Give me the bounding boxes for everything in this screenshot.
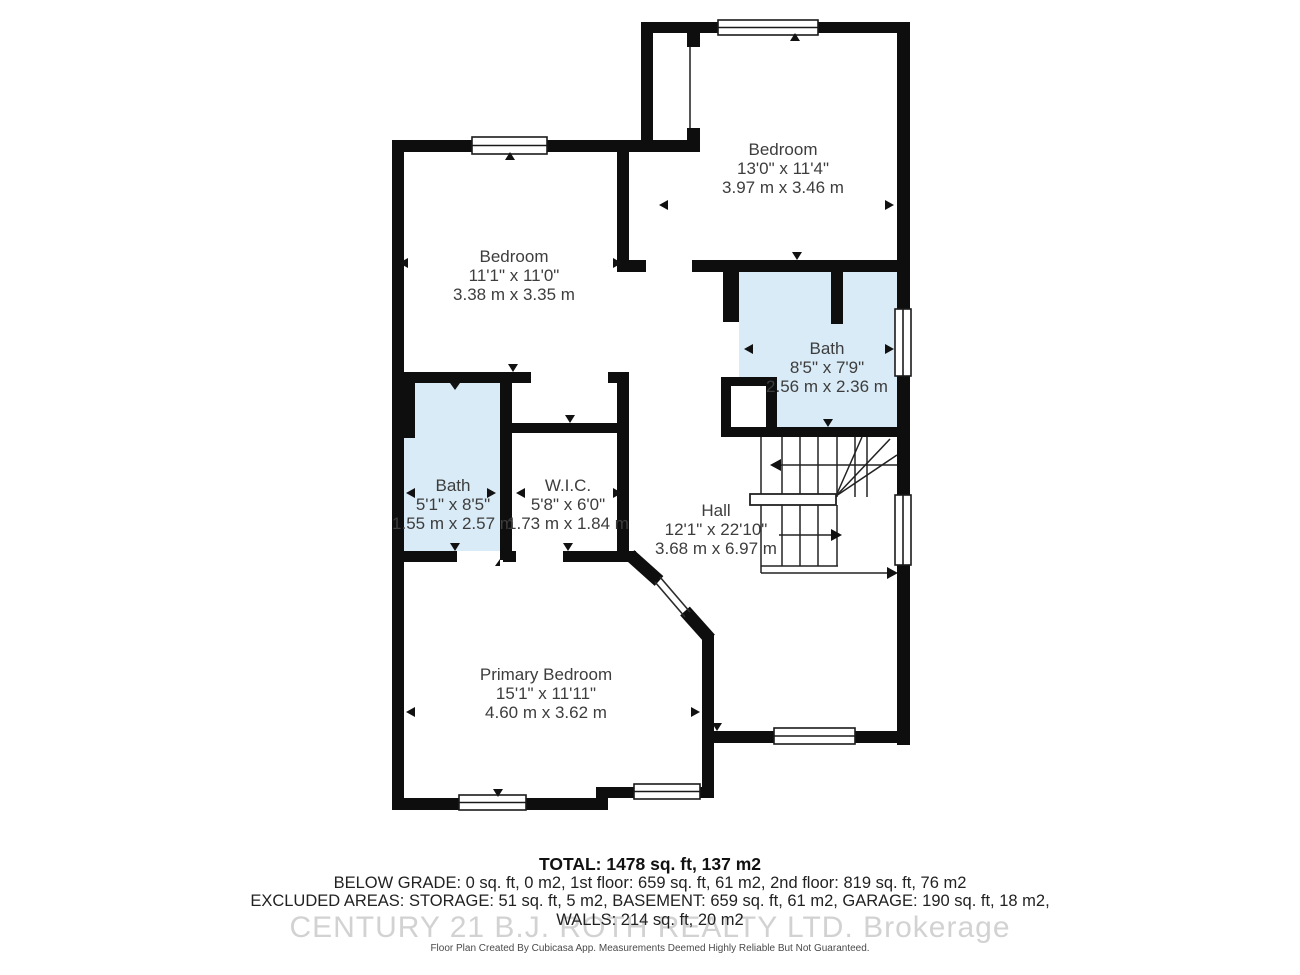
room-dim-metric: 1.73 m x 1.84 m: [507, 514, 629, 533]
area-summary: TOTAL: 1478 sq. ft, 137 m2 BELOW GRADE: …: [0, 855, 1300, 929]
room-label-bath-left: Bath 5'1" x 8'5" 1.55 m x 2.57 m: [392, 476, 514, 533]
stair-arrowheads: [770, 459, 898, 579]
room-label-bath-right: Bath 8'5" x 7'9" 2.56 m x 2.36 m: [766, 339, 888, 396]
total-area-text: TOTAL: 1478 sq. ft, 137 m2: [0, 855, 1300, 874]
room-dim-imperial: 13'0" x 11'4": [722, 159, 844, 178]
room-dim-metric: 4.60 m x 3.62 m: [480, 703, 612, 722]
room-dim-imperial: 11'1" x 11'0": [453, 266, 575, 285]
diagonal-walls: [630, 555, 710, 639]
room-label-bedroom-left: Bedroom 11'1" x 11'0" 3.38 m x 3.35 m: [453, 247, 575, 304]
room-dim-imperial: 8'5" x 7'9": [766, 358, 888, 377]
room-name: Bath: [766, 339, 888, 358]
room-label-wic: W.I.C. 5'8" x 6'0" 1.73 m x 1.84 m: [507, 476, 629, 533]
window-primary-bottom-right: [634, 784, 700, 799]
room-label-primary-bedroom: Primary Bedroom 15'1" x 11'11" 4.60 m x …: [480, 665, 612, 722]
room-name: Primary Bedroom: [480, 665, 612, 684]
floors-area-text: BELOW GRADE: 0 sq. ft, 0 m2, 1st floor: …: [0, 874, 1300, 893]
room-dim-imperial: 15'1" x 11'11": [480, 684, 612, 703]
room-dim-metric: 3.68 m x 6.97 m: [655, 539, 777, 558]
window-primary-bottom-left: [459, 795, 526, 810]
room-label-hall: Hall 12'1" x 22'10" 3.68 m x 6.97 m: [655, 501, 777, 558]
window-hall-bottom: [774, 728, 855, 744]
room-dim-metric: 1.55 m x 2.57 m: [392, 514, 514, 533]
room-name: Bath: [392, 476, 514, 495]
room-dim-imperial: 12'1" x 22'10": [655, 520, 777, 539]
room-dim-metric: 3.97 m x 3.46 m: [722, 178, 844, 197]
room-dim-metric: 3.38 m x 3.35 m: [453, 285, 575, 304]
diagonal-door-lines: [655, 577, 690, 617]
window-stairwell: [895, 495, 911, 565]
room-name: Bedroom: [722, 140, 844, 159]
floor-plan-page: Bedroom 13'0" x 11'4" 3.97 m x 3.46 m Be…: [0, 0, 1300, 975]
room-dim-imperial: 5'8" x 6'0": [507, 495, 629, 514]
window-top-bedroom-top: [718, 20, 818, 35]
room-dim-imperial: 5'1" x 8'5": [392, 495, 514, 514]
excluded-area-text: EXCLUDED AREAS: STORAGE: 51 sq. ft, 5 m2…: [0, 892, 1300, 911]
floor-plan-drawing: [0, 0, 1300, 975]
room-name: Bedroom: [453, 247, 575, 266]
room-dim-metric: 2.56 m x 2.36 m: [766, 377, 888, 396]
window-bath-right: [895, 309, 911, 376]
room-label-bedroom-top: Bedroom 13'0" x 11'4" 3.97 m x 3.46 m: [722, 140, 844, 197]
window-left-bedroom-top: [472, 137, 547, 154]
room-name: Hall: [655, 501, 777, 520]
room-name: W.I.C.: [507, 476, 629, 495]
disclaimer-text: Floor Plan Created By Cubicasa App. Meas…: [0, 943, 1300, 954]
walls-area-text: WALLS: 214 sq. ft, 20 m2: [0, 911, 1300, 930]
